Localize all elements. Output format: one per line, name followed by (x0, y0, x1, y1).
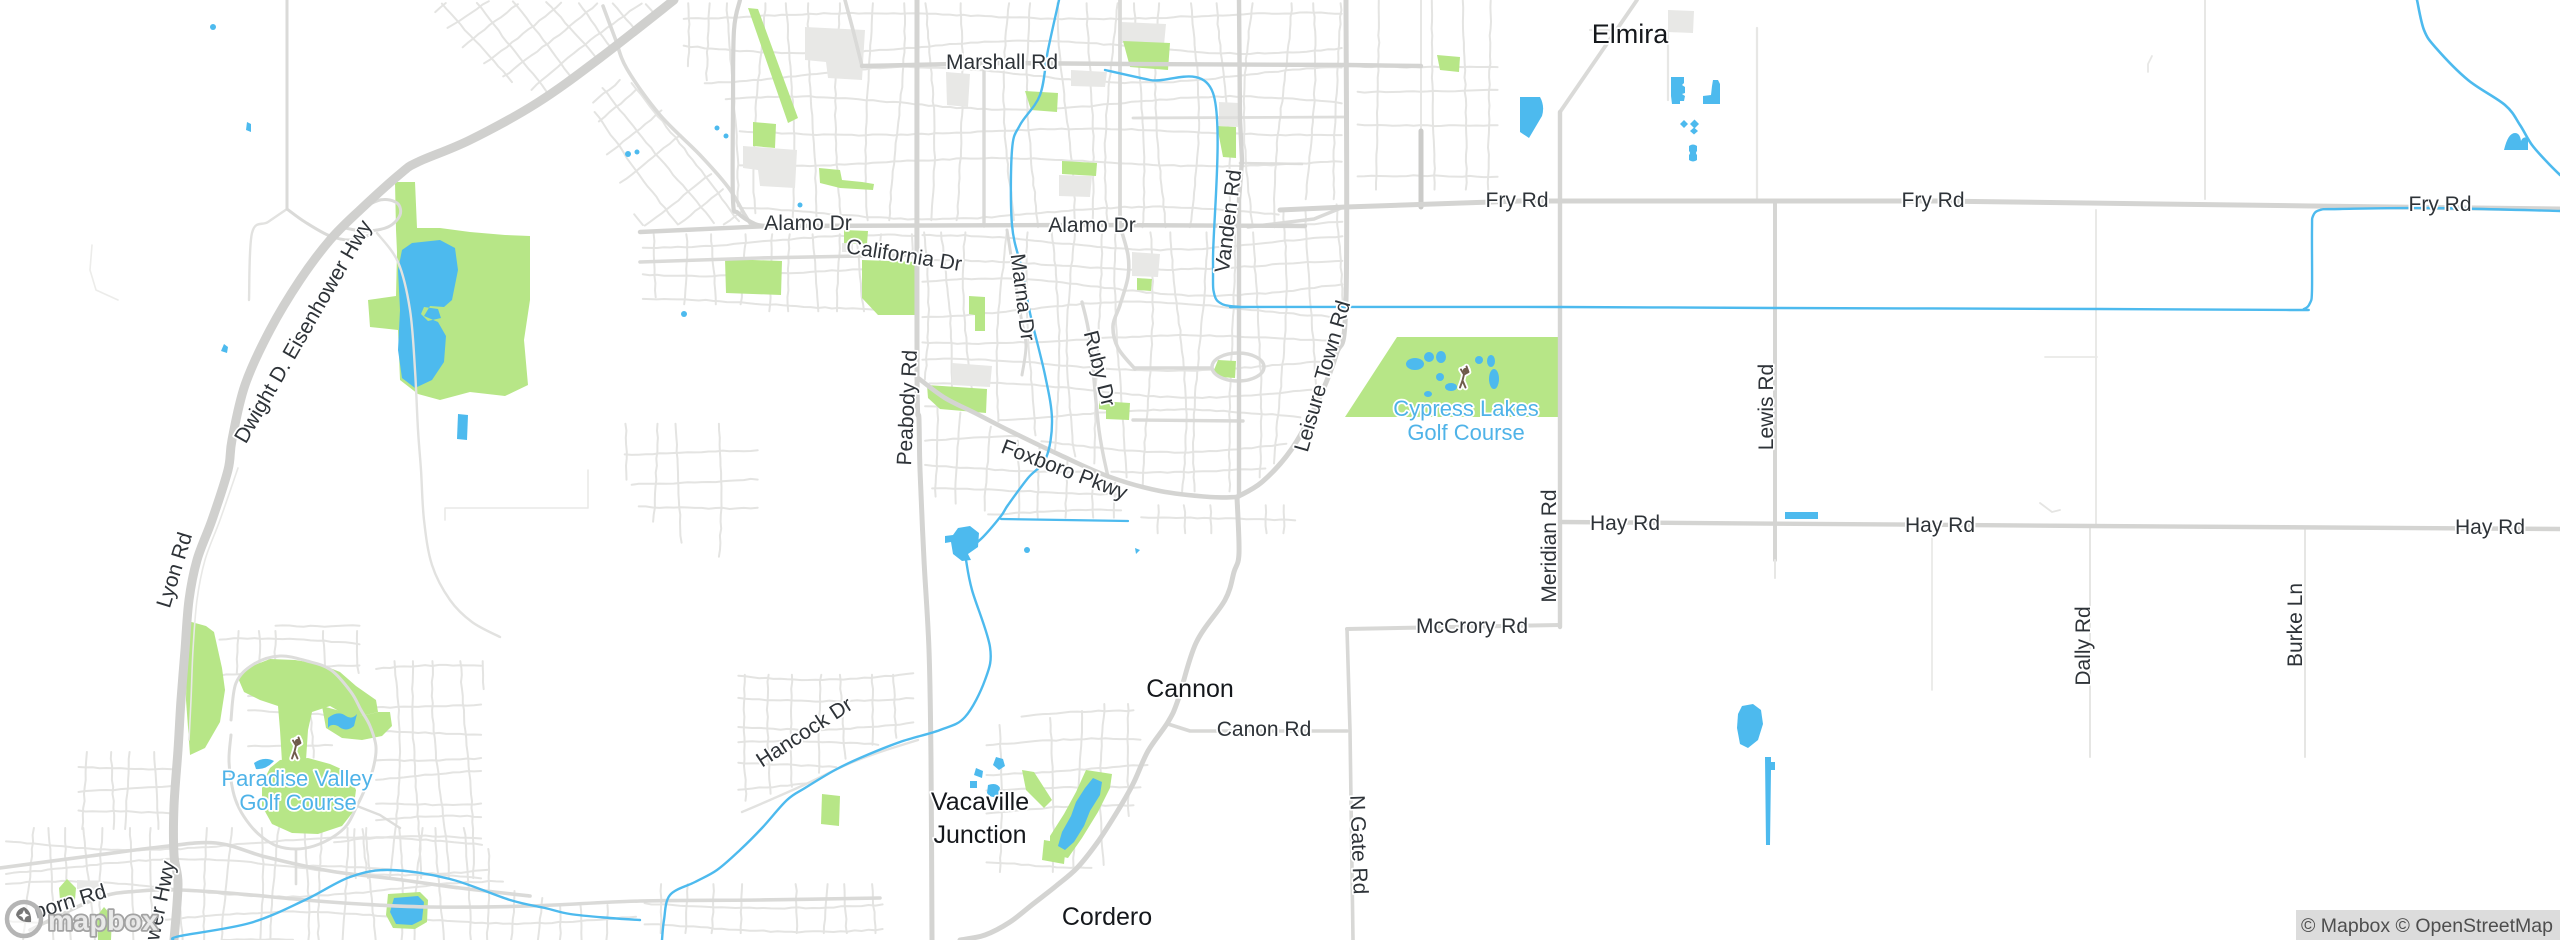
svg-text:Dally Rd: Dally Rd (2072, 606, 2095, 685)
svg-text:Hay Rd: Hay Rd (1590, 512, 1660, 535)
svg-text:N Gate Rd: N Gate Rd (1345, 795, 1371, 895)
svg-text:Burke Ln: Burke Ln (2284, 583, 2307, 667)
svg-text:Paradise Valley: Paradise Valley (221, 766, 372, 791)
svg-text:Golf Course: Golf Course (239, 790, 356, 815)
svg-text:Fry Rd: Fry Rd (1902, 189, 1965, 212)
svg-text:Cordero: Cordero (1062, 903, 1152, 931)
svg-text:Marshall Rd: Marshall Rd (946, 51, 1058, 74)
svg-text:McCrory Rd: McCrory Rd (1416, 615, 1528, 638)
svg-text:Meridian Rd: Meridian Rd (1538, 489, 1561, 602)
svg-text:Hay Rd: Hay Rd (2455, 516, 2525, 539)
svg-text:Fry Rd: Fry Rd (1486, 189, 1549, 212)
svg-text:mapbox: mapbox (48, 905, 158, 936)
svg-text:Fry Rd: Fry Rd (2409, 193, 2472, 216)
svg-text:Elmira: Elmira (1592, 19, 1669, 49)
svg-text:© Mapbox © OpenStreetMap: © Mapbox © OpenStreetMap (2301, 915, 2553, 937)
svg-text:Canon Rd: Canon Rd (1217, 718, 1312, 741)
svg-text:Cypress Lakes: Cypress Lakes (1393, 396, 1539, 421)
svg-text:Junction: Junction (1060, 936, 1153, 940)
svg-text:Alamo Dr: Alamo Dr (764, 212, 852, 235)
svg-text:Cannon: Cannon (1146, 675, 1234, 703)
svg-text:Lewis Rd: Lewis Rd (1755, 364, 1778, 450)
svg-text:Hay Rd: Hay Rd (1905, 514, 1975, 537)
svg-text:Alamo Dr: Alamo Dr (1048, 214, 1136, 237)
svg-text:Junction: Junction (933, 821, 1026, 849)
svg-text:Golf Course: Golf Course (1407, 420, 1524, 445)
svg-text:Vacaville: Vacaville (931, 788, 1029, 816)
